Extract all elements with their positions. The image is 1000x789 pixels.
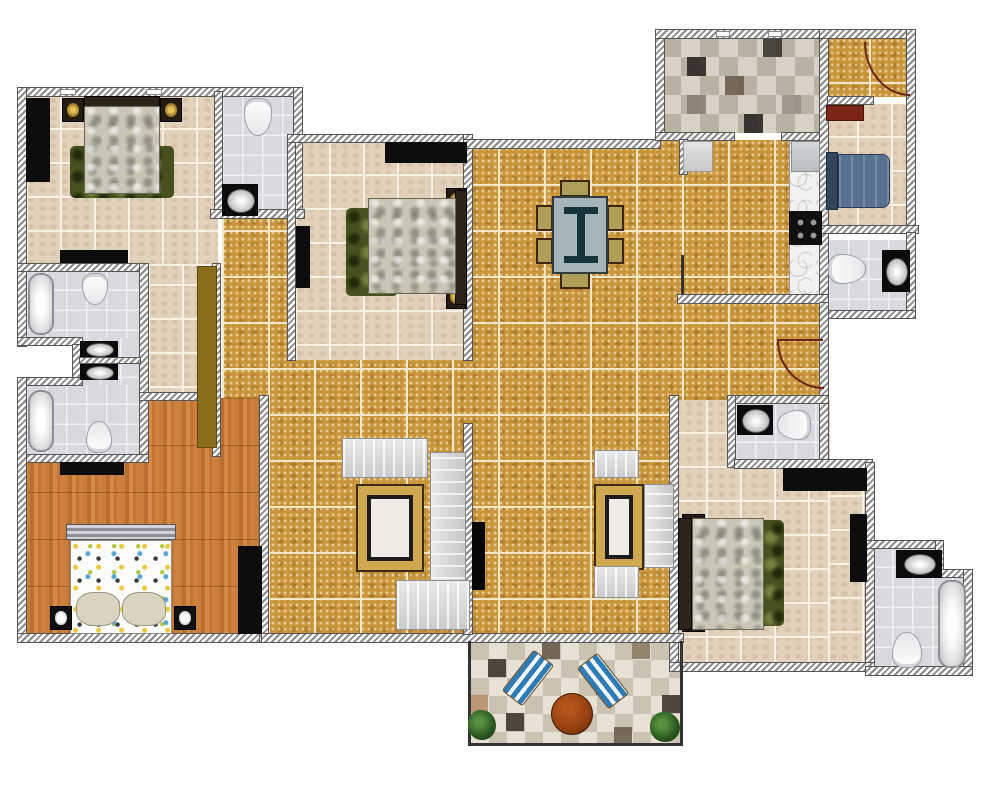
patio-tile-accent [662,695,680,713]
round-patio-table [551,693,593,735]
bathtub-icon [28,273,54,335]
wall-guestbath-top [728,396,828,403]
tv-icon [472,522,485,590]
plant-icon [468,710,496,740]
sink-icon [227,189,255,213]
dresser-icon [60,250,128,263]
double-bed [84,106,160,194]
nightstand-icon [174,606,196,630]
bathtub-icon [28,390,54,452]
wall-bottom-left [18,634,268,642]
kitchen-tile-accent [725,76,744,95]
wall-foyer-bottom [828,97,873,104]
patio-rail-right [680,641,683,745]
bed-headboard [826,152,838,210]
wall-bathB-bottom [18,455,148,462]
wall-bedBR-bottom [670,663,874,671]
wall-bathBR-bottom [866,667,972,675]
wall-notch-bottom [18,378,82,385]
kitchen-tile-accent [687,57,706,76]
sofa-icon [342,438,428,478]
wardrobe-icon [26,98,50,182]
sink-icon [886,258,908,286]
dresser-icon [60,462,124,475]
patio-tile-accent [542,641,560,659]
patio-tile-accent [632,641,650,659]
dining-chair [560,272,590,289]
sink-icon [86,366,114,380]
toilet-icon [892,632,922,668]
sliding-door-panel [197,266,217,448]
bed-headboard [455,190,467,305]
wall-bed1-bottom [18,264,148,271]
wall-bedBR-right [866,463,874,675]
wardrobe-icon [783,468,867,491]
sofa-icon [644,484,674,568]
wall-ensuite-left [215,92,222,216]
fridge-icon [791,141,820,172]
closet-icon [850,514,867,582]
nightstand-icon [50,606,72,630]
dresser-icon [826,105,864,121]
wall-kitchen-top [656,30,828,38]
sectional-sofa-icon [396,580,470,630]
wall-guestbath-left [728,396,735,467]
double-bed [368,198,456,294]
window-icon [60,89,76,95]
single-bed-blue [838,154,890,208]
stove-icon [789,211,822,245]
dining-chair [536,238,553,264]
wall-bed3-bottom [820,226,918,233]
nightstand-icon [160,98,182,122]
wall-vanity-divider [80,358,140,363]
bed-headboard [678,518,692,630]
wall-bed2-top [288,135,472,142]
floor-plan-canvas [0,0,1000,789]
kitchen-tile-accent [763,38,782,57]
wardrobe-icon [238,546,262,634]
closet-icon [296,226,310,288]
dining-chair [607,238,624,264]
dining-chair [536,205,553,231]
wall-bedBR-top [735,460,872,468]
toilet-icon [86,421,112,453]
pillow-icon [122,592,166,626]
bathtub-icon [938,580,966,668]
wall-mid-horizontal [678,295,828,303]
double-bed [692,518,764,630]
wall-kids-top [140,393,200,400]
wall-living-top [464,140,660,148]
wall-right-top [820,30,915,38]
kitchen-appliance-icon [683,141,713,172]
kitchen-tile-accent [782,95,801,114]
kitchen-tile-accent [687,95,706,114]
dining-table [552,196,608,274]
table-detail [577,212,585,258]
dining-chair [560,180,590,197]
wall-bathR-bottom [820,311,915,318]
wall-notch-top [18,338,82,345]
area-rug [596,486,642,568]
wall-kitchen-bottom-a [656,133,734,140]
wall-kitchen-left [656,30,664,140]
kitchen-tile-accent [744,114,763,133]
toilet-icon [777,410,811,440]
hall-door-leaf [777,339,823,341]
wall-ensuite-right [294,88,302,216]
window-icon [768,31,782,37]
wall-bed2-left [288,135,295,360]
wardrobe-icon [385,142,467,163]
wall-left-upper [18,88,26,346]
sink-icon [86,343,114,357]
dining-chair [607,205,624,231]
window-icon [716,31,730,37]
plant-icon [650,712,680,742]
wall-kitchen-bottom-b [782,133,822,140]
patio-tile-accent [488,659,506,677]
loveseat-icon [594,566,639,598]
window-icon [146,89,162,95]
kids-bed-headrail [66,524,176,540]
wall-baths-right [140,264,148,462]
wall-bathBR-top [866,541,943,548]
patio-tile-accent [506,713,524,731]
nightstand-icon [62,98,84,122]
wall-living-bottom [262,634,683,642]
pillow-icon [76,592,120,626]
sink-icon [742,409,770,433]
wall-left-lower [18,378,26,642]
sink-icon [904,554,936,575]
loveseat-icon [594,450,639,478]
patio-rail-bottom [468,743,683,746]
area-rug [358,486,422,570]
